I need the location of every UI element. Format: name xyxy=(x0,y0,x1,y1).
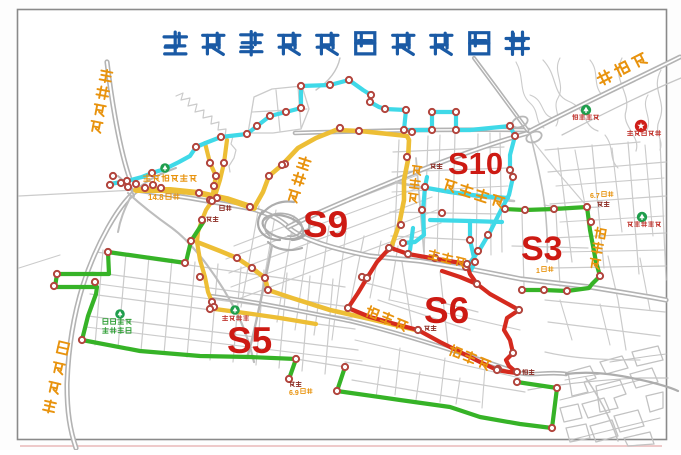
svg-text:14.8: 14.8 xyxy=(148,193,164,202)
svg-text:S10: S10 xyxy=(448,146,503,181)
svg-text:S5: S5 xyxy=(227,320,272,361)
svg-text:S3: S3 xyxy=(521,230,563,268)
svg-text:S6: S6 xyxy=(424,290,469,331)
svg-text:6.9: 6.9 xyxy=(289,390,299,397)
svg-text:S9: S9 xyxy=(303,204,348,245)
svg-text:1: 1 xyxy=(536,268,540,275)
svg-text:6.7: 6.7 xyxy=(590,193,600,200)
